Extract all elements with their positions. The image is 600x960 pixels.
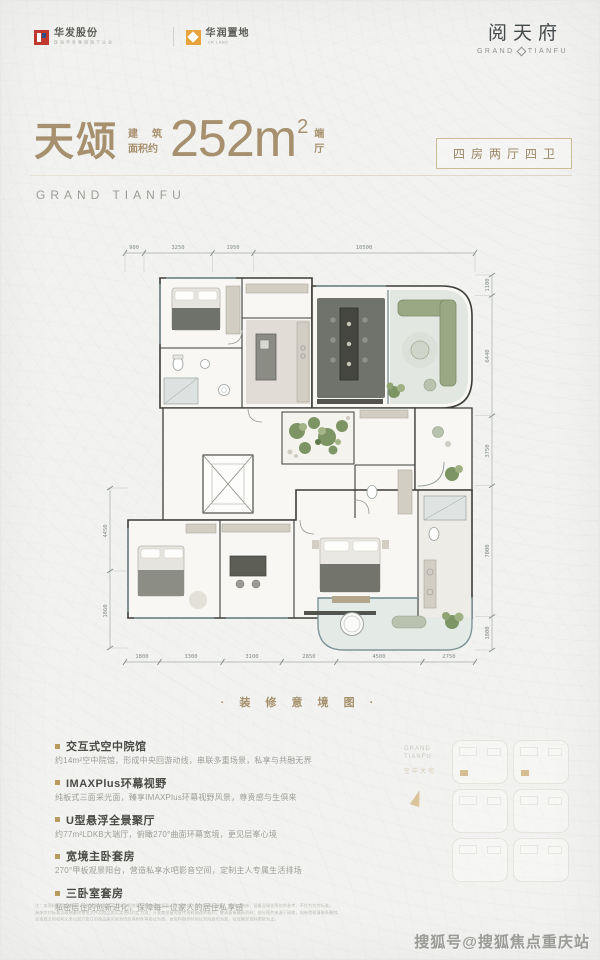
unit-suffix-line2: 厅 (314, 142, 324, 158)
keyplan-unit (452, 789, 508, 833)
feature-desc: 纯板式三面采光面，臻享IMAXPlus环幕视野风景，尊贵感与生俱来 (55, 793, 395, 804)
unit-suffix-line1: 端 (314, 127, 324, 143)
plan-caption: · 装 修 意 境 图 · (0, 694, 600, 710)
svg-text:1100: 1100 (485, 278, 491, 291)
area-prefix-line1: 建筑 (128, 127, 176, 143)
feature-item: 宽境主卧套房 270°甲板观景阳台，营造私享水吧影音空间，定制主人专属生活排场 (55, 848, 395, 877)
layout-badge: 四房两厅四卫 (436, 138, 572, 169)
room-bedroom1 (172, 286, 240, 334)
balcony-top-right (387, 290, 469, 404)
room-bath1 (164, 355, 230, 404)
feature-item: IMAXPlus环幕视野 纯板式三面采光面，臻享IMAXPlus环幕视野风景，尊… (55, 775, 395, 804)
developer-logo-huafa: 华发股份 珠 海 华 发 集 团 旗 下 企 业 (34, 28, 161, 47)
feature-list: 交互式空中院馆 约14m²空中院馆，形成中央回游动线，串联多重场景，私享与共融无… (55, 738, 395, 922)
unit-name: 天颂 (34, 123, 118, 161)
bullet-icon (55, 854, 60, 859)
svg-text:1800: 1800 (135, 654, 148, 660)
north-arrow-icon (410, 789, 424, 807)
keyplan-label: 空中大宅 (404, 766, 436, 775)
bullet-icon (55, 891, 60, 896)
project-brand-en-tianfu: TIANFU (528, 48, 568, 55)
feature-title: 交互式空中院馆 (66, 738, 147, 754)
svg-text:10500: 10500 (356, 245, 373, 251)
crland-logo-subtitle: CR LAND (206, 40, 230, 44)
feature-desc: 约77m²LDKB大端厅，俯瞰270°曲面环幕宽境，更见层峯心境 (55, 830, 395, 841)
feature-item: 交互式空中院馆 约14m²空中院馆，形成中央回游动线，串联多重场景，私享与共融无… (55, 738, 395, 767)
keyplan-unit (513, 740, 569, 784)
balcony-bottom (341, 612, 464, 636)
svg-text:2850: 2850 (302, 654, 315, 660)
area-prefix-line2: 面积约 (128, 142, 162, 158)
disclaimer-line: 买卖双方的权利义务以双方签订的商品房买卖合同及其附件等协议为准。本资料制作时间以… (35, 916, 563, 923)
room-living-dining (317, 298, 385, 404)
svg-text:7000: 7000 (485, 544, 491, 557)
room-bath2 (360, 410, 412, 514)
feature-title: 宽境主卧套房 (66, 848, 135, 864)
room-master-bath (419, 491, 471, 617)
room-lounge-right (418, 427, 463, 487)
poster-page: 华发股份 珠 海 华 发 集 团 旗 下 企 业 华润置地 CR LAND 阅天… (0, 0, 600, 960)
crland-logo-name: 华润置地 (206, 28, 250, 39)
feature-title: 三卧室套房 (66, 885, 124, 901)
huafa-logo-subtitle: 珠 海 华 发 集 团 旗 下 企 业 (54, 40, 113, 44)
bullet-icon (55, 817, 60, 822)
feature-title: IMAXPlus环幕视野 (66, 775, 167, 791)
bullet-icon (55, 780, 60, 785)
project-brand: 阅天府 GRAND TIANFU (477, 18, 568, 55)
feature-desc: 270°甲板观景阳台，营造私享水吧影音空间，定制主人专属生活排场 (55, 866, 395, 877)
door-arcs (228, 330, 369, 534)
svg-text:1800: 1800 (485, 626, 491, 639)
header: 华发股份 珠 海 华 发 集 团 旗 下 企 业 华润置地 CR LAND (34, 20, 250, 54)
feature-desc: 约14m²空中院馆，形成中央回游动线，串联多重场景，私享与共融无界 (55, 756, 395, 767)
room-bedroom3 (222, 524, 290, 588)
svg-text:3250: 3250 (171, 245, 184, 251)
huafa-logo-name: 华发股份 (54, 28, 161, 39)
room-kitchen (246, 284, 310, 404)
unit-title: 天颂 建筑 面积约 252m 2 端 厅 (34, 118, 324, 161)
keyplan-unit (513, 789, 569, 833)
project-brand-cn: 阅天府 (477, 18, 574, 45)
room-bedroom2 (138, 524, 216, 609)
feature-title: U型悬浮全景聚厅 (66, 812, 155, 828)
svg-text:2750: 2750 (442, 654, 455, 660)
svg-text:1950: 1950 (226, 245, 239, 251)
svg-text:3750: 3750 (485, 444, 491, 457)
svg-text:900: 900 (129, 245, 139, 251)
svg-text:1860: 1860 (103, 604, 109, 617)
bullet-icon (55, 744, 60, 749)
svg-text:3300: 3300 (184, 654, 197, 660)
keyplan-grid (452, 740, 569, 882)
plant-balcony-top (387, 383, 406, 399)
keyplan-unit (452, 740, 508, 784)
courtyard-garden (282, 412, 354, 464)
building-shell (128, 278, 472, 650)
title-divider (30, 175, 572, 176)
feature-item: U型悬浮全景聚厅 约77m²LDKB大端厅，俯瞰270°曲面环幕宽境，更见层峯心… (55, 812, 395, 841)
title-brand-en: GRAND TIANFU (36, 188, 186, 202)
logo-divider (173, 27, 174, 47)
huafa-logo-icon (34, 30, 49, 45)
svg-text:3100: 3100 (245, 654, 258, 660)
brand-diamond-icon (516, 47, 526, 57)
developer-logo-crland: 华润置地 CR LAND (186, 28, 250, 47)
keyplan-unit (513, 838, 569, 882)
core-stairs-elevator (203, 455, 253, 513)
disclaimer-line: 具体交付标准以政府最终审批文件及商品房买卖合同约定为准；开发商保留对宣传资料修改… (35, 910, 563, 917)
sohu-watermark: 搜狐号@搜狐焦点重庆站 (414, 931, 590, 952)
svg-text:6440: 6440 (485, 349, 491, 362)
room-master-bedroom (304, 538, 389, 615)
disclaimer-line: 注：本资料为要约邀请，不构成要约或承诺；文中相关面积均为建筑面积，户型图仅为装修… (35, 903, 563, 910)
keyplan-brand-grand: GRAND (404, 746, 432, 754)
area-value: 252m (170, 118, 296, 161)
disclaimer: 注：本资料为要约邀请，不构成要约或承诺；文中相关面积均为建筑面积，户型图仅为装修… (35, 903, 563, 923)
project-brand-en-grand: GRAND (477, 48, 515, 55)
area-superscript: 2 (297, 116, 308, 139)
crland-logo-icon (186, 30, 201, 45)
dimension-annotations: 900 3250 1950 10500 1800 3300 3100 2850 … (103, 245, 495, 665)
keyplan: GRAND TIANFU 空中大宅 (400, 740, 575, 888)
keyplan-unit (452, 838, 508, 882)
keyplan-brand-tianfu: TIANFU (404, 754, 432, 762)
svg-text:4500: 4500 (372, 654, 385, 660)
svg-text:4450: 4450 (103, 524, 109, 537)
